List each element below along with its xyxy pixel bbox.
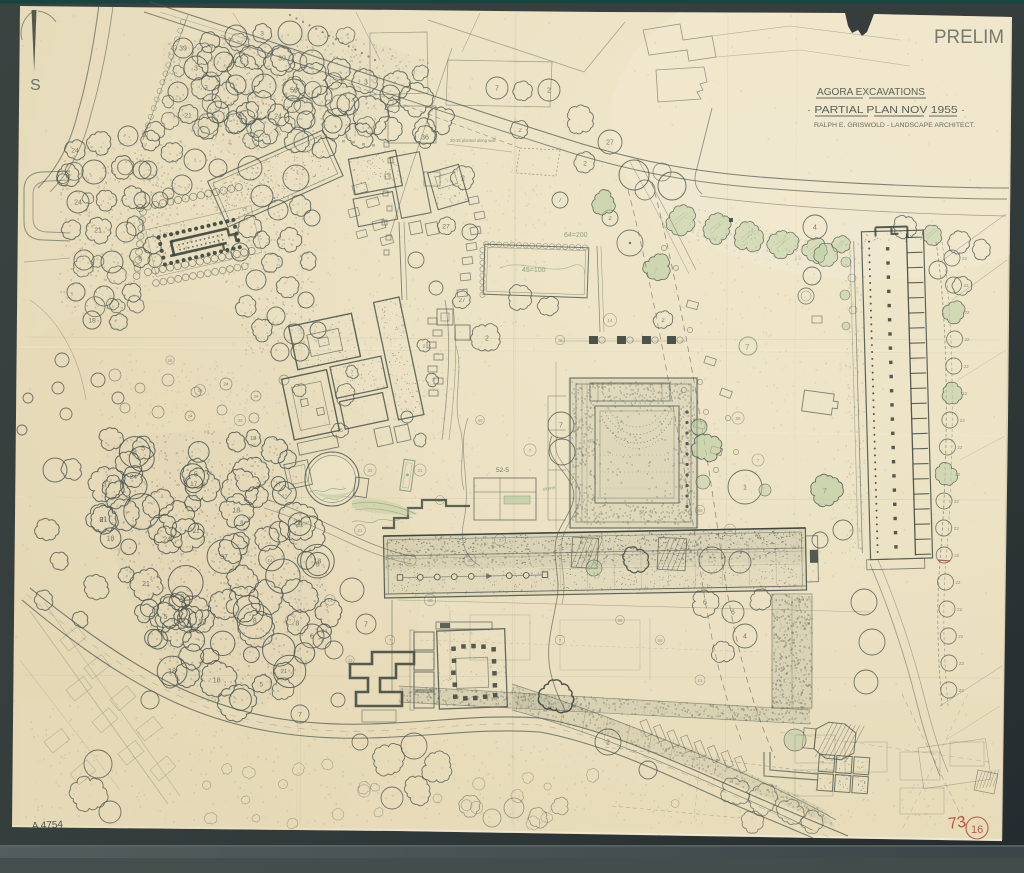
- svg-text:22: 22: [957, 607, 963, 612]
- svg-text:8: 8: [295, 621, 299, 628]
- svg-text:18: 18: [250, 436, 256, 442]
- svg-text:6: 6: [703, 600, 707, 607]
- svg-text:22: 22: [955, 472, 961, 477]
- svg-text:45=100: 45=100: [522, 267, 546, 274]
- svg-text:24: 24: [274, 114, 282, 121]
- svg-text:59: 59: [290, 88, 298, 95]
- svg-text:7: 7: [823, 488, 827, 495]
- svg-text:52-5: 52-5: [496, 467, 509, 474]
- svg-text:21: 21: [142, 581, 150, 588]
- svg-text:36: 36: [197, 388, 203, 393]
- svg-text:4: 4: [743, 634, 747, 641]
- svg-text:5: 5: [164, 614, 168, 621]
- svg-text:36: 36: [557, 338, 563, 343]
- svg-text:21: 21: [184, 112, 192, 119]
- svg-text:22: 22: [954, 526, 960, 531]
- svg-text:2: 2: [485, 335, 489, 342]
- svg-text:14: 14: [607, 318, 613, 323]
- svg-text:33: 33: [237, 418, 243, 423]
- svg-text:5: 5: [259, 682, 263, 689]
- svg-text:S: S: [30, 77, 41, 94]
- svg-text:24: 24: [223, 382, 229, 387]
- svg-text:21: 21: [697, 678, 703, 683]
- svg-text:1: 1: [743, 484, 747, 491]
- svg-text:18: 18: [107, 536, 115, 543]
- svg-text:24: 24: [254, 393, 259, 398]
- svg-text:6: 6: [731, 610, 735, 617]
- svg-text:17: 17: [198, 619, 206, 626]
- svg-text:27: 27: [459, 298, 466, 304]
- svg-text:33: 33: [367, 468, 373, 473]
- svg-text:22: 22: [959, 661, 965, 666]
- svg-text:2: 2: [583, 160, 587, 167]
- svg-text:21: 21: [193, 529, 200, 535]
- svg-text:6: 6: [310, 634, 314, 641]
- svg-text:22: 22: [958, 634, 964, 639]
- svg-text:14: 14: [327, 598, 333, 603]
- svg-text:PRELIM: PRELIM: [934, 27, 1004, 48]
- svg-text:5: 5: [194, 472, 198, 479]
- svg-text:22: 22: [964, 283, 970, 288]
- svg-text:37: 37: [103, 482, 111, 489]
- svg-text:40: 40: [477, 418, 483, 423]
- svg-text:3: 3: [194, 66, 198, 73]
- svg-text:8: 8: [180, 594, 184, 601]
- svg-text:21: 21: [94, 227, 102, 234]
- svg-text:7: 7: [745, 343, 750, 352]
- svg-text:21: 21: [281, 669, 288, 675]
- svg-text:64=200: 64=200: [564, 232, 588, 239]
- svg-text:33: 33: [347, 658, 353, 663]
- svg-text:24: 24: [71, 147, 79, 154]
- svg-text:58: 58: [735, 416, 741, 421]
- svg-text:40: 40: [467, 558, 473, 563]
- svg-text:3: 3: [364, 80, 368, 87]
- svg-text:21: 21: [296, 522, 304, 529]
- svg-text:22: 22: [965, 337, 971, 342]
- svg-text:22: 22: [962, 391, 968, 396]
- svg-text:24: 24: [163, 537, 171, 544]
- svg-text:2: 2: [547, 88, 551, 95]
- svg-text:7: 7: [364, 622, 368, 629]
- svg-text:21: 21: [100, 517, 108, 524]
- svg-text:22: 22: [964, 364, 970, 369]
- svg-text:22: 22: [960, 418, 966, 423]
- svg-text:39: 39: [179, 46, 187, 53]
- svg-text:24: 24: [188, 413, 193, 418]
- svg-text:73: 73: [947, 814, 967, 833]
- svg-text:40: 40: [427, 598, 433, 603]
- svg-text:14: 14: [267, 558, 273, 563]
- svg-text:58: 58: [657, 638, 663, 643]
- svg-text:21: 21: [417, 468, 423, 473]
- svg-text:22: 22: [965, 310, 971, 315]
- svg-text:22: 22: [957, 445, 963, 450]
- svg-text:A 4754: A 4754: [32, 819, 64, 832]
- svg-text:22: 22: [954, 553, 960, 558]
- svg-text:22: 22: [956, 580, 962, 585]
- svg-text:21: 21: [357, 528, 363, 533]
- svg-text:7: 7: [495, 86, 499, 93]
- svg-text:8: 8: [133, 450, 137, 457]
- svg-text:40: 40: [697, 508, 703, 513]
- svg-text:4: 4: [813, 224, 817, 231]
- svg-text:27: 27: [606, 139, 614, 146]
- svg-text:7: 7: [559, 422, 563, 429]
- svg-text:22: 22: [962, 256, 968, 261]
- svg-text:7: 7: [298, 711, 302, 718]
- svg-text:22: 22: [954, 499, 960, 504]
- svg-text:36: 36: [727, 528, 733, 533]
- svg-text:30-35 planted along wall: 30-35 planted along wall: [450, 138, 495, 143]
- svg-text:24: 24: [74, 199, 82, 206]
- svg-text:8: 8: [240, 521, 243, 527]
- svg-text:18: 18: [213, 678, 221, 685]
- svg-text:RALPH E. GRISWOLD - LANDSCAPE: RALPH E. GRISWOLD - LANDSCAPE ARCHITECT.: [814, 122, 975, 129]
- svg-text:58: 58: [617, 618, 623, 623]
- svg-text:58: 58: [167, 358, 173, 363]
- svg-text:16: 16: [971, 824, 983, 836]
- svg-text:AGORA EXCAVATIONS: AGORA EXCAVATIONS: [817, 86, 925, 98]
- svg-text:36: 36: [421, 134, 429, 141]
- svg-text:14: 14: [437, 498, 443, 503]
- svg-text:2: 2: [606, 740, 610, 747]
- svg-text:18: 18: [88, 317, 96, 324]
- svg-text:· PARTIAL PLAN NOV 1955 ·: · PARTIAL PLAN NOV 1955 ·: [807, 104, 965, 116]
- svg-text:3: 3: [260, 30, 264, 37]
- svg-text:18: 18: [233, 508, 241, 515]
- svg-text:39: 39: [278, 56, 286, 63]
